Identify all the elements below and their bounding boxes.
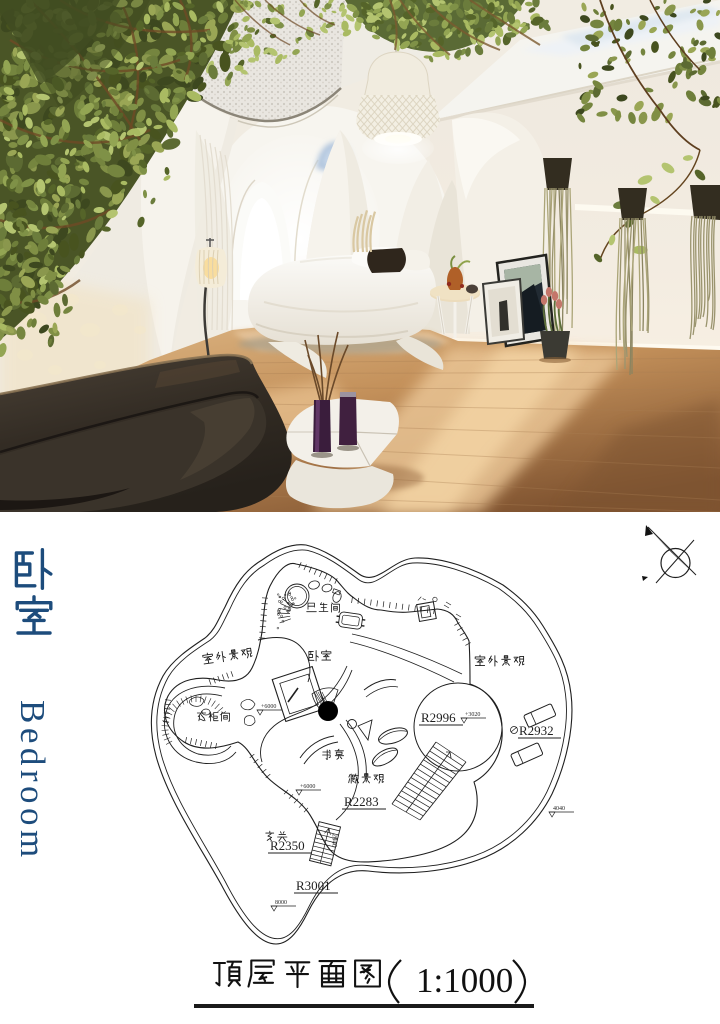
svg-text:R2283: R2283 xyxy=(344,794,379,809)
svg-text:Bedroom: Bedroom xyxy=(13,700,52,862)
svg-text:1:1000: 1:1000 xyxy=(416,961,513,1000)
svg-text:R3001: R3001 xyxy=(296,878,331,893)
svg-text:+6000: +6000 xyxy=(261,704,276,710)
svg-text:R2932: R2932 xyxy=(519,723,554,738)
svg-text:8000: 8000 xyxy=(275,900,287,906)
svg-text:+3020: +3020 xyxy=(465,712,480,718)
svg-text:R2350: R2350 xyxy=(270,838,305,853)
svg-text:R2996: R2996 xyxy=(421,710,456,725)
svg-text:+6000: +6000 xyxy=(300,784,315,790)
svg-text:4040: 4040 xyxy=(553,806,565,812)
svg-text:2040: 2040 xyxy=(330,833,339,848)
